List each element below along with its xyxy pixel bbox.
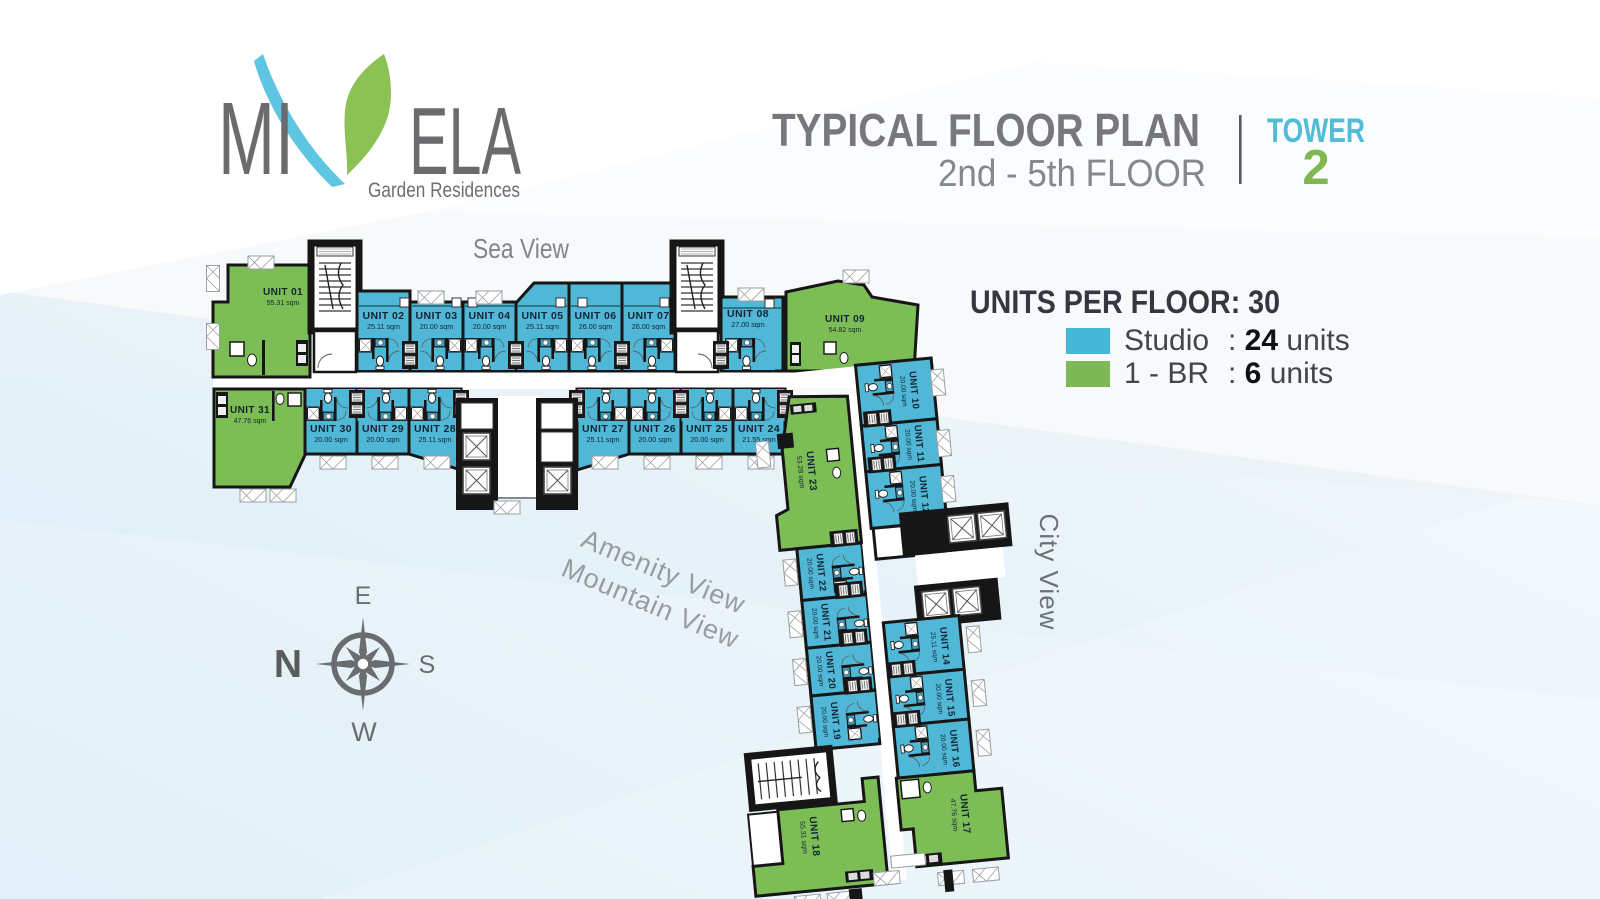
svg-text:UNIT 2620.00 sqm: UNIT 2620.00 sqm [634, 423, 676, 444]
svg-text:UNIT 0954.82 sqm: UNIT 0954.82 sqm [825, 314, 865, 334]
svg-text:UNIT 0420.00 sqm: UNIT 0420.00 sqm [469, 310, 511, 331]
svg-text:MI: MI [218, 81, 294, 196]
svg-text:: 6 units: : 6 units [1228, 357, 1333, 390]
svg-text:: 24 units: : 24 units [1228, 324, 1350, 357]
svg-text:E: E [355, 582, 372, 610]
svg-text:UNITS PER FLOOR: 30: UNITS PER FLOOR: 30 [970, 284, 1280, 320]
svg-text:TYPICAL FLOOR PLAN: TYPICAL FLOOR PLAN [772, 104, 1200, 156]
svg-text:1 - BR: 1 - BR [1124, 357, 1209, 390]
svg-text:Studio: Studio [1124, 324, 1209, 357]
svg-text:UNIT 2725.11 sqm: UNIT 2725.11 sqm [582, 423, 624, 444]
svg-text:UNIT 0726.00 sqm: UNIT 0726.00 sqm [628, 310, 670, 331]
svg-text:City View: City View [1034, 514, 1064, 631]
svg-text:UNIT 2520.00 sqm: UNIT 2520.00 sqm [686, 423, 728, 444]
svg-text:Sea View: Sea View [473, 233, 570, 264]
svg-text:2nd - 5th FLOOR: 2nd - 5th FLOOR [938, 153, 1206, 195]
svg-text:UNIT 3147.76 sqm: UNIT 3147.76 sqm [230, 405, 270, 425]
svg-text:Garden Residences: Garden Residences [368, 179, 520, 202]
svg-text:UNIT 2825.11 sqm: UNIT 2825.11 sqm [414, 423, 456, 444]
svg-text:UNIT 0626.00 sqm: UNIT 0626.00 sqm [575, 310, 617, 331]
svg-text:UNIT 0155.31 sqm: UNIT 0155.31 sqm [263, 287, 303, 307]
svg-text:2: 2 [1302, 141, 1329, 195]
svg-text:UNIT 0525.11 sqm: UNIT 0525.11 sqm [522, 310, 564, 331]
svg-text:N: N [274, 643, 302, 686]
svg-text:W: W [351, 717, 377, 747]
svg-text:UNIT 3020.00 sqm: UNIT 3020.00 sqm [310, 423, 352, 444]
svg-text:UNIT 0225.11 sqm: UNIT 0225.11 sqm [363, 310, 405, 331]
svg-text:S: S [419, 651, 436, 679]
svg-text:UNIT 0827.00 sqm: UNIT 0827.00 sqm [727, 308, 769, 329]
svg-text:UNIT 2920.00 sqm: UNIT 2920.00 sqm [362, 423, 404, 444]
svg-text:UNIT 2421.55 sqm: UNIT 2421.55 sqm [738, 423, 780, 444]
svg-text:UNIT 0320.00 sqm: UNIT 0320.00 sqm [416, 310, 458, 331]
